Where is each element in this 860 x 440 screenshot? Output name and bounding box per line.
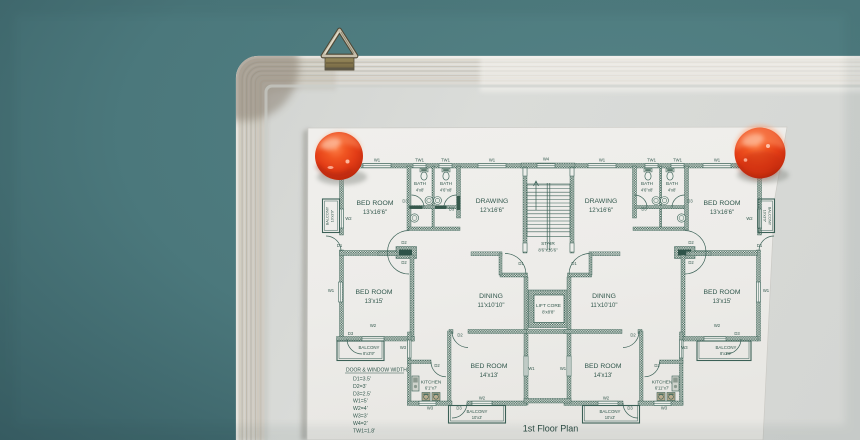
svg-text:W3=3': W3=3' [353,414,368,420]
svg-text:10'x3': 10'x3' [605,415,616,420]
svg-text:4'x8': 4'x8' [668,188,677,193]
svg-text:BED ROOM: BED ROOM [356,200,393,207]
svg-text:D2=3': D2=3' [353,384,367,390]
svg-text:D3: D3 [734,331,740,336]
svg-text:D3: D3 [449,207,455,212]
svg-text:D3: D3 [456,406,462,411]
svg-text:BALCONY: BALCONY [600,409,621,414]
svg-text:W3: W3 [427,406,434,411]
svg-text:D2: D2 [434,363,440,368]
svg-text:W1: W1 [599,158,606,163]
svg-text:DOOR & WINDOW WIDTH:: DOOR & WINDOW WIDTH: [346,368,408,374]
svg-text:TW1: TW1 [415,158,425,163]
svg-text:W3: W3 [681,345,688,350]
svg-text:W1: W1 [560,366,567,371]
svg-text:W1: W1 [763,288,770,293]
svg-text:D2: D2 [654,363,660,368]
svg-text:BATH: BATH [641,181,653,186]
svg-text:BED ROOM: BED ROOM [584,363,621,370]
svg-text:D1: D1 [757,243,763,248]
svg-text:D2: D2 [401,260,407,265]
svg-text:6'11"x7': 6'11"x7' [655,386,669,391]
svg-text:STAIR: STAIR [541,241,555,247]
svg-text:DRAWING: DRAWING [585,198,618,205]
svg-text:W1: W1 [528,366,535,371]
svg-text:D2: D2 [688,260,694,265]
svg-text:BATH: BATH [440,181,452,186]
svg-text:W1: W1 [374,158,381,163]
svg-text:KITCHEN: KITCHEN [421,380,442,385]
svg-text:8'6"x16'6": 8'6"x16'6" [538,248,558,253]
svg-text:8'x8'8": 8'x8'8" [542,310,555,315]
svg-text:10'x3'9": 10'x3'9" [331,209,335,222]
svg-text:4'6"x8': 4'6"x8' [641,188,653,193]
svg-text:TW1: TW1 [673,158,683,163]
svg-text:BED ROOM: BED ROOM [470,363,507,370]
svg-text:13'x15': 13'x15' [365,299,384,305]
svg-text:W2: W2 [746,216,753,221]
svg-text:BATH: BATH [414,181,426,186]
svg-text:D1=3.5': D1=3.5' [353,377,371,383]
svg-text:TW1: TW1 [647,158,657,163]
svg-text:W3: W3 [661,406,668,411]
svg-text:W2: W2 [370,323,377,328]
svg-text:D3=2.5': D3=2.5' [353,391,371,397]
svg-text:D2: D2 [630,333,636,338]
svg-text:BALCONY: BALCONY [359,345,380,350]
svg-text:W2: W2 [714,323,721,328]
svg-text:D1: D1 [571,261,577,266]
svg-text:14'x13': 14'x13' [480,373,499,379]
svg-text:11'x10'10": 11'x10'10" [591,303,618,309]
svg-text:8'x3'9": 8'x3'9" [363,351,375,356]
svg-text:DRAWING: DRAWING [476,198,509,205]
svg-text:W2: W2 [603,396,610,401]
svg-text:W1=5': W1=5' [353,399,368,405]
svg-text:D1: D1 [518,261,524,266]
svg-text:D3: D3 [687,199,693,204]
svg-text:W1: W1 [328,288,335,293]
svg-text:11'x10'10": 11'x10'10" [478,303,505,309]
svg-text:W2: W2 [479,396,486,401]
svg-text:BALCONY: BALCONY [325,206,330,225]
svg-text:BALCONY: BALCONY [768,207,773,226]
svg-text:W2=4': W2=4' [353,406,368,412]
svg-text:BED ROOM: BED ROOM [355,289,392,296]
svg-text:W4: W4 [543,157,550,162]
svg-text:10'x3': 10'x3' [472,415,483,420]
svg-text:D3: D3 [641,207,647,212]
svg-text:DINING: DINING [592,293,616,300]
svg-text:4'x8': 4'x8' [416,188,425,193]
svg-text:13'x16'6": 13'x16'6" [710,210,734,216]
svg-text:BALCONY: BALCONY [467,409,488,414]
svg-text:BED ROOM: BED ROOM [703,289,740,296]
svg-text:D3: D3 [348,331,354,336]
svg-text:8'x3'9": 8'x3'9" [720,351,732,356]
svg-text:13'x16'6": 13'x16'6" [363,210,387,216]
svg-text:W1: W1 [489,158,496,163]
svg-text:14'x13': 14'x13' [594,373,613,379]
svg-text:12'x16'6": 12'x16'6" [589,208,613,214]
svg-text:W3: W3 [400,345,407,350]
svg-text:TW1: TW1 [441,158,451,163]
svg-text:BALCONY: BALCONY [716,345,737,350]
svg-text:10'x3'9": 10'x3'9" [763,210,767,223]
svg-text:BED ROOM: BED ROOM [703,200,740,207]
svg-text:LIFT CORE: LIFT CORE [536,303,561,309]
svg-text:W1: W1 [714,158,721,163]
svg-text:D3: D3 [402,199,408,204]
svg-text:W2: W2 [345,216,352,221]
svg-text:D3: D3 [627,406,633,411]
svg-text:BATH: BATH [666,181,678,186]
svg-text:KITCHEN: KITCHEN [652,380,673,385]
svg-text:D2: D2 [457,333,463,338]
svg-text:D2: D2 [401,240,407,245]
svg-text:D2: D2 [688,240,694,245]
svg-text:DINING: DINING [479,293,503,300]
svg-text:12'x16'6": 12'x16'6" [480,208,504,214]
svg-text:D1: D1 [337,243,343,248]
svg-text:4'6"x8': 4'6"x8' [440,188,452,193]
svg-text:6'1"x7': 6'1"x7' [425,386,437,391]
svg-text:13'x15': 13'x15' [713,299,732,305]
